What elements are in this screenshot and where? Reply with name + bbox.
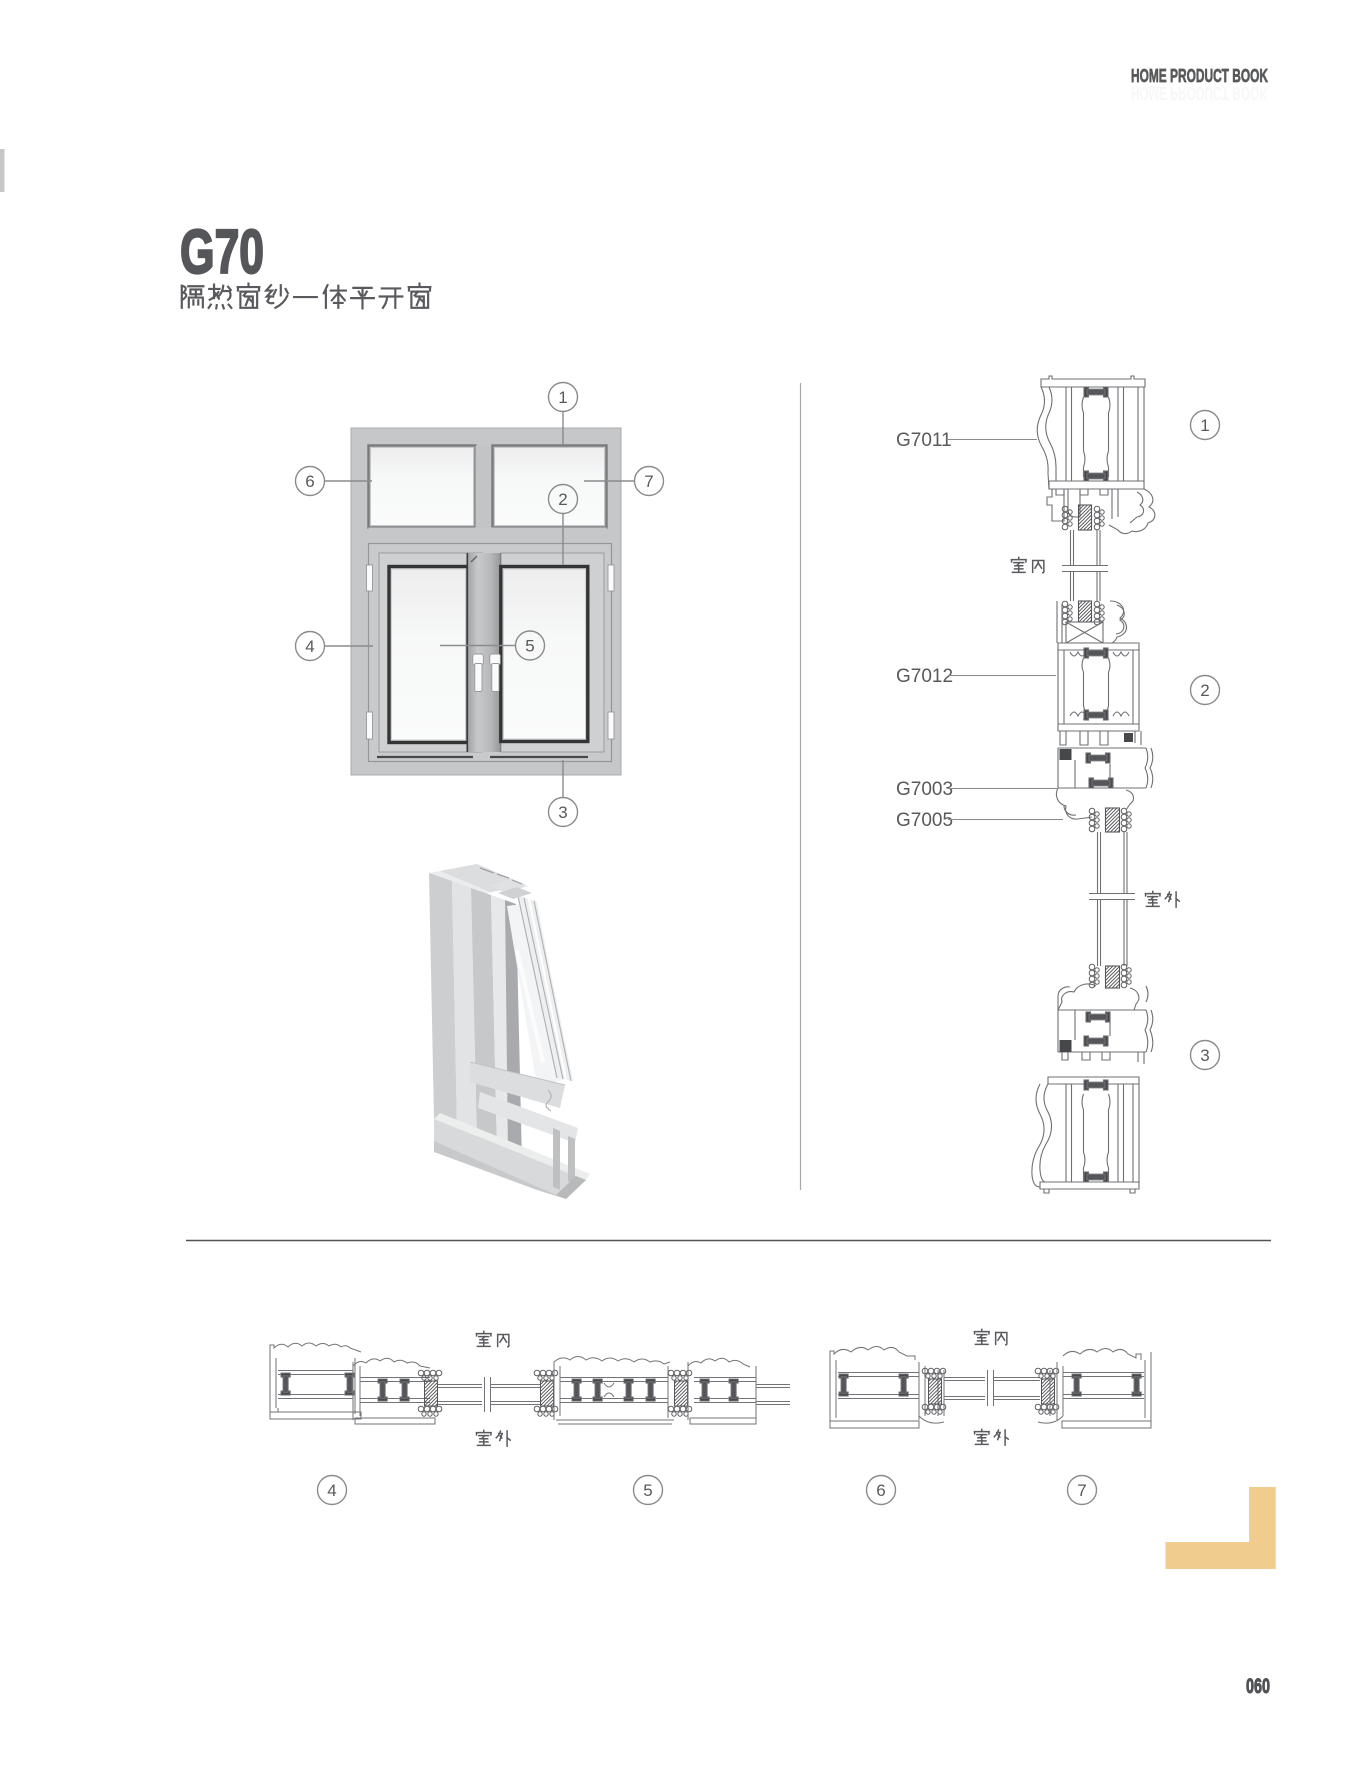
svg-text:G70: G70	[180, 218, 264, 287]
svg-text:4: 4	[327, 1481, 336, 1500]
svg-text:2: 2	[1200, 681, 1209, 700]
svg-text:5: 5	[643, 1481, 652, 1500]
svg-text:7: 7	[1077, 1481, 1086, 1500]
svg-text:1: 1	[1200, 416, 1209, 435]
svg-text:7: 7	[644, 472, 653, 491]
svg-text:HOME PRODUCT BOOK: HOME PRODUCT BOOK	[1131, 83, 1268, 104]
svg-text:HOME PRODUCT BOOK: HOME PRODUCT BOOK	[1131, 65, 1268, 86]
svg-text:3: 3	[1200, 1046, 1209, 1065]
svg-text:6: 6	[305, 472, 314, 491]
svg-text:1: 1	[558, 388, 567, 407]
svg-text:G7005: G7005	[896, 810, 953, 831]
svg-text:060: 060	[1246, 1675, 1270, 1698]
svg-text:2: 2	[558, 490, 567, 509]
svg-text:3: 3	[558, 803, 567, 822]
svg-text:6: 6	[876, 1481, 885, 1500]
svg-text:5: 5	[525, 637, 534, 656]
svg-text:G7012: G7012	[896, 666, 953, 687]
svg-text:G7003: G7003	[896, 779, 953, 800]
svg-text:4: 4	[305, 637, 314, 656]
svg-text:G7011: G7011	[896, 430, 952, 451]
